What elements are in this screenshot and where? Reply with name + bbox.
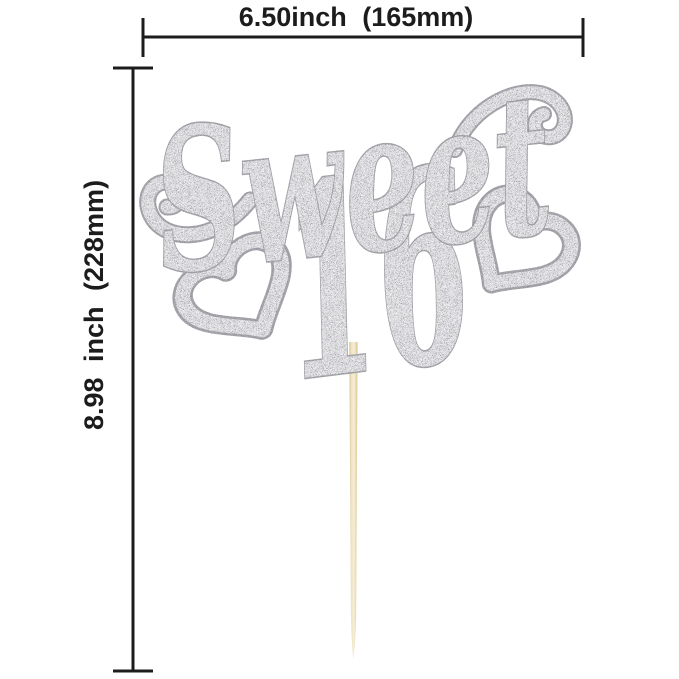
height-dimension-label: 8.98 inch (228mm)	[79, 180, 109, 430]
product-image-canvas: 6.50inch (165mm) 8.98 inch (228mm)	[0, 0, 679, 679]
width-dimension: 6.50inch (165mm)	[143, 2, 583, 57]
height-dimension: 8.98 inch (228mm)	[79, 68, 153, 671]
product-image: 6.50inch (165mm) 8.98 inch (228mm)	[0, 0, 679, 679]
topper-word: Sweet	[144, 49, 561, 318]
cake-topper: 16 Sweet	[144, 49, 581, 441]
width-dimension-label: 6.50inch (165mm)	[239, 2, 474, 32]
